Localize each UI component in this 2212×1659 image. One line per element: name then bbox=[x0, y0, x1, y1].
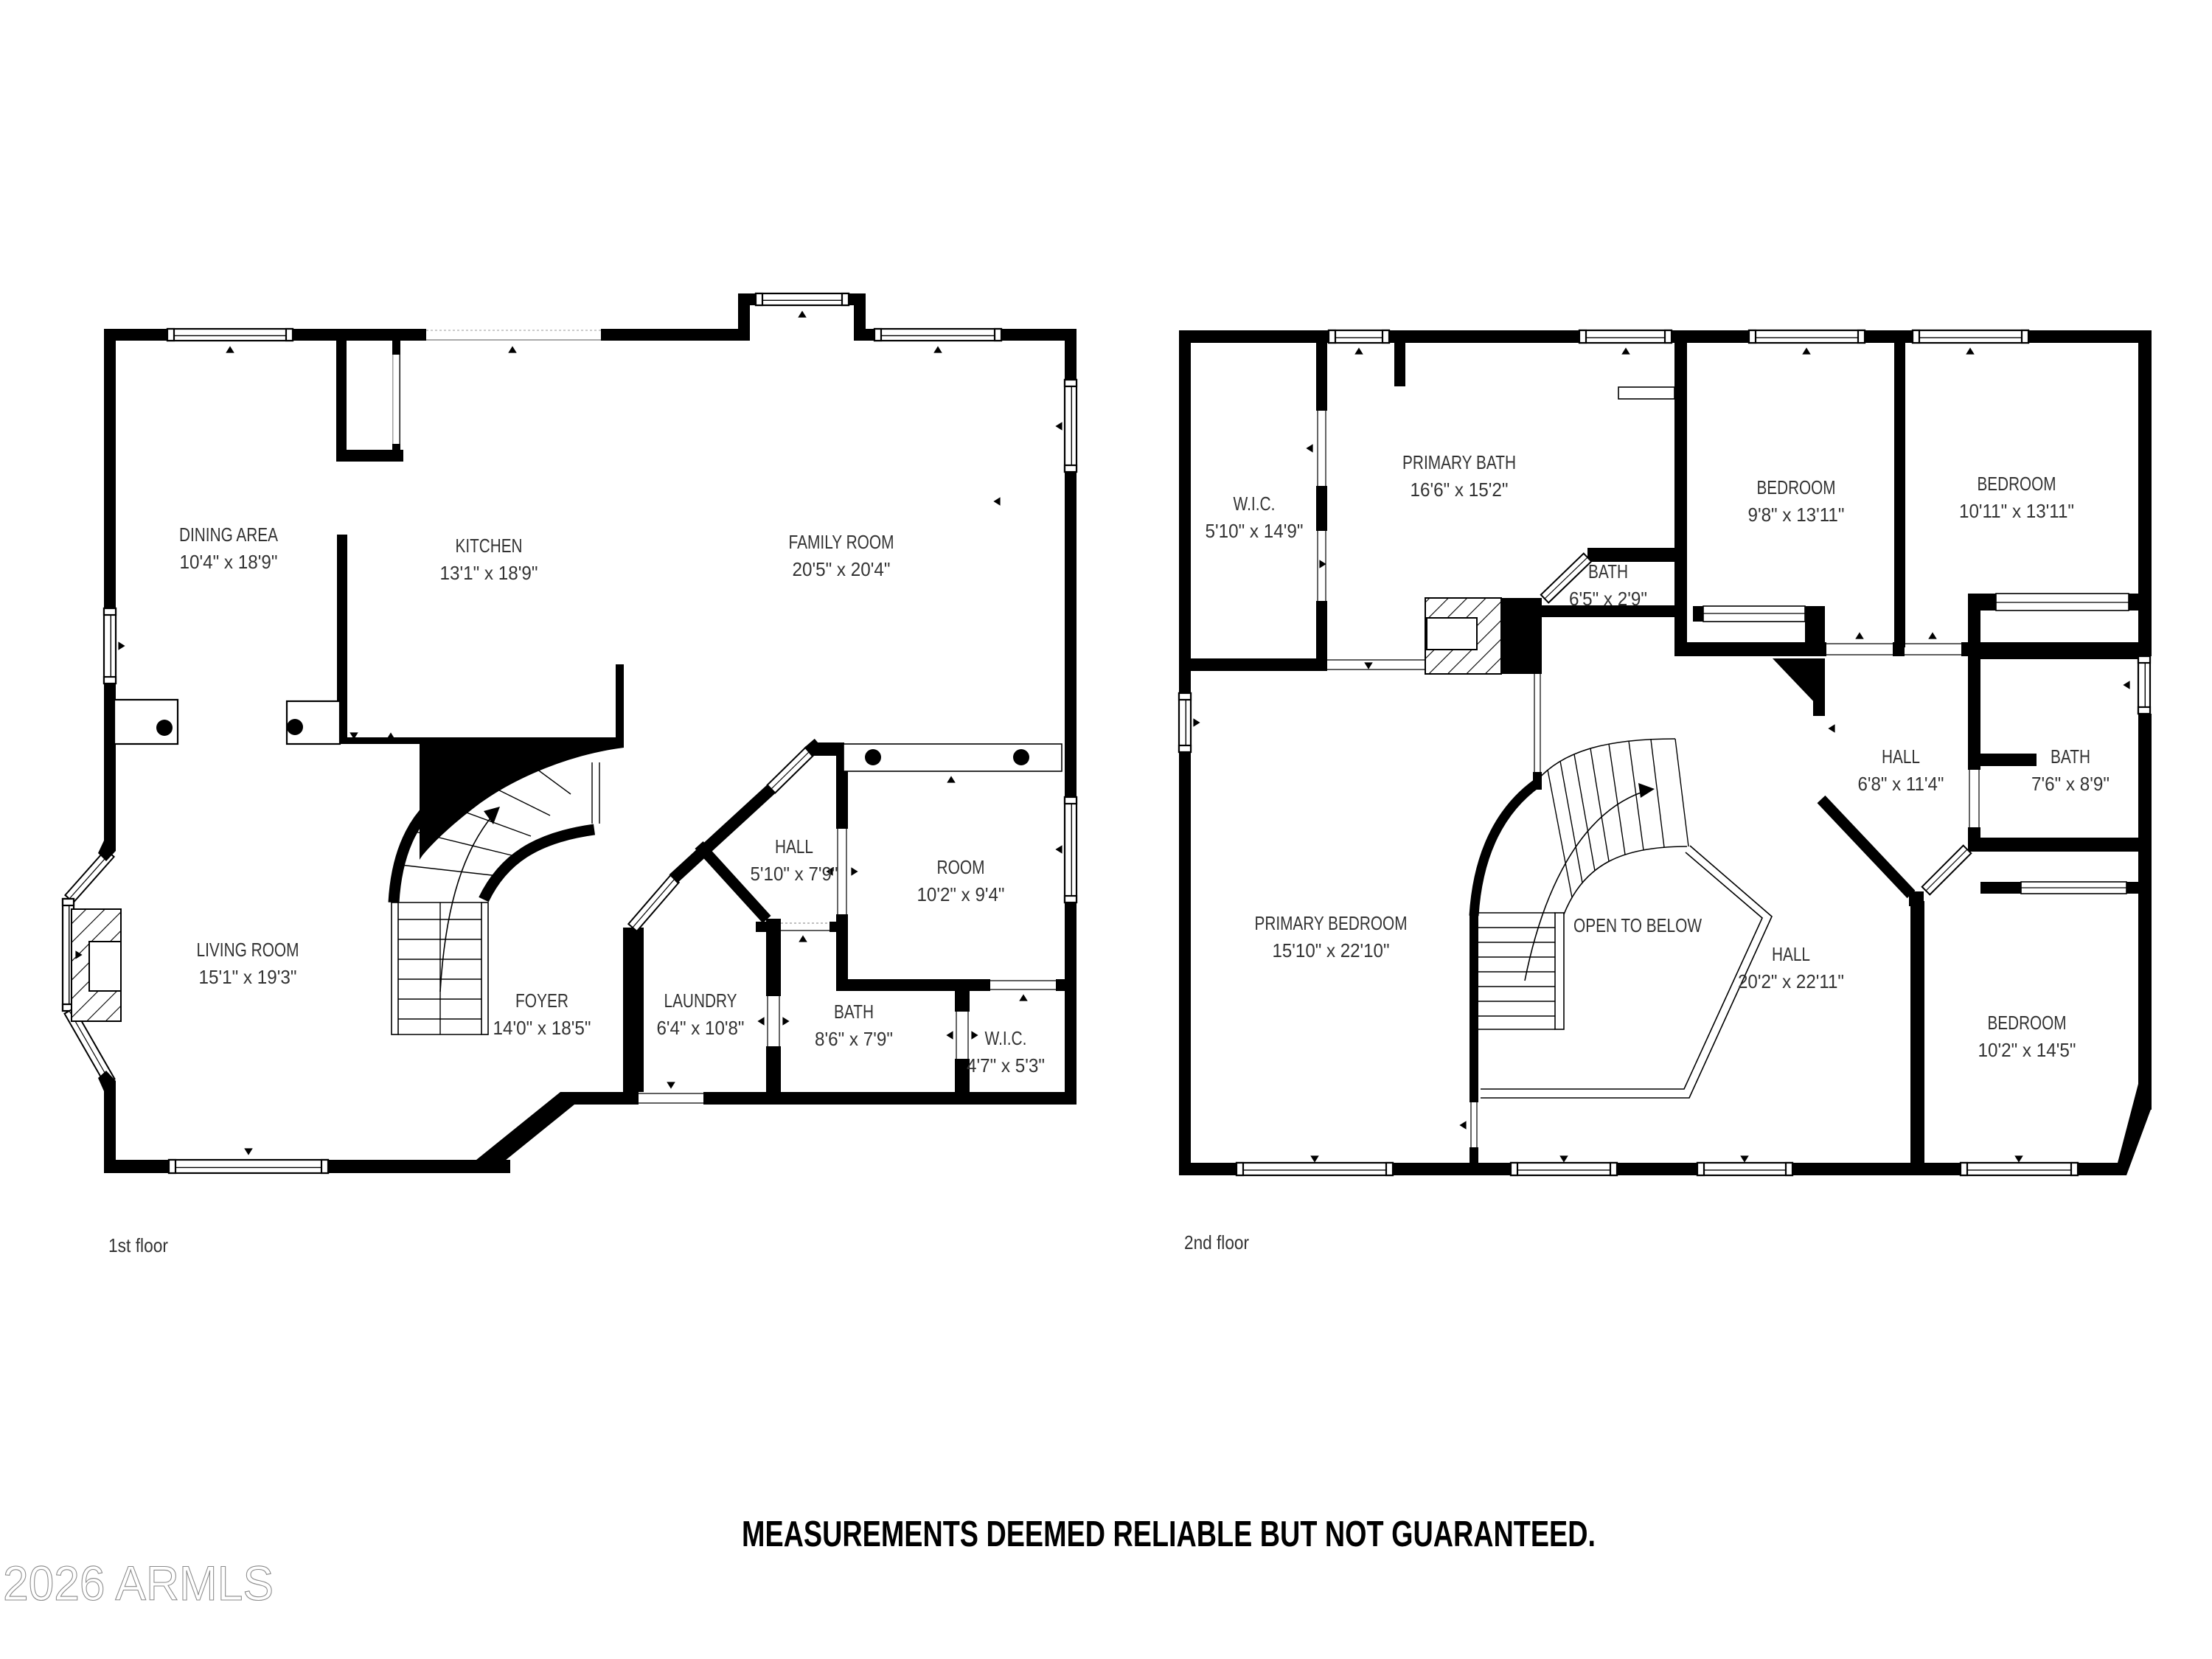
svg-text:FAMILY ROOM: FAMILY ROOM bbox=[789, 531, 894, 553]
svg-text:4'7" x 5'3": 4'7" x 5'3" bbox=[967, 1054, 1045, 1077]
svg-text:BATH: BATH bbox=[834, 1001, 874, 1023]
svg-text:7'6" x 8'9": 7'6" x 8'9" bbox=[2031, 773, 2110, 795]
svg-text:1st floor: 1st floor bbox=[108, 1234, 168, 1256]
svg-text:ROOM: ROOM bbox=[937, 856, 985, 878]
svg-text:5'10" x 7'9": 5'10" x 7'9" bbox=[751, 863, 838, 885]
svg-text:10'4" x 18'9": 10'4" x 18'9" bbox=[180, 551, 278, 573]
svg-text:W.I.C.: W.I.C. bbox=[985, 1027, 1027, 1049]
svg-text:MEASUREMENTS DEEMED RELIABLE B: MEASUREMENTS DEEMED RELIABLE BUT NOT GUA… bbox=[742, 1514, 1596, 1554]
svg-text:HALL: HALL bbox=[1882, 745, 1920, 768]
svg-text:LAUNDRY: LAUNDRY bbox=[664, 990, 737, 1012]
svg-text:DINING AREA: DINING AREA bbox=[179, 524, 279, 546]
svg-text:KITCHEN: KITCHEN bbox=[456, 535, 523, 557]
svg-text:15'1" x 19'3": 15'1" x 19'3" bbox=[199, 966, 297, 988]
svg-text:10'11" x 13'11": 10'11" x 13'11" bbox=[1959, 500, 2074, 522]
svg-text:BEDROOM: BEDROOM bbox=[1988, 1012, 2067, 1034]
svg-text:BATH: BATH bbox=[2051, 745, 2090, 768]
svg-text:6'8" x 11'4": 6'8" x 11'4" bbox=[1858, 773, 1944, 795]
svg-text:OPEN TO BELOW: OPEN TO BELOW bbox=[1573, 914, 1702, 936]
svg-text:LIVING ROOM: LIVING ROOM bbox=[197, 939, 299, 961]
svg-text:5'10" x 14'9": 5'10" x 14'9" bbox=[1206, 520, 1304, 542]
svg-text:6'4" x 10'8": 6'4" x 10'8" bbox=[657, 1017, 745, 1039]
svg-text:BATH: BATH bbox=[1588, 560, 1628, 582]
svg-text:FOYER: FOYER bbox=[515, 990, 568, 1012]
svg-text:HALL: HALL bbox=[775, 835, 813, 858]
svg-text:15'10" x 22'10": 15'10" x 22'10" bbox=[1273, 939, 1390, 961]
svg-text:8'6" x 7'9": 8'6" x 7'9" bbox=[815, 1028, 893, 1050]
svg-text:W.I.C.: W.I.C. bbox=[1234, 493, 1276, 515]
svg-text:6'5" x 2'9": 6'5" x 2'9" bbox=[1569, 588, 1647, 610]
svg-text:BEDROOM: BEDROOM bbox=[1757, 476, 1836, 498]
svg-text:2nd floor: 2nd floor bbox=[1184, 1231, 1249, 1253]
svg-text:16'6" x 15'2": 16'6" x 15'2" bbox=[1411, 479, 1509, 501]
svg-text:20'2" x 22'11": 20'2" x 22'11" bbox=[1738, 970, 1844, 992]
svg-text:BEDROOM: BEDROOM bbox=[1978, 473, 2056, 495]
svg-text:HALL: HALL bbox=[1772, 943, 1810, 965]
svg-text:14'0" x 18'5": 14'0" x 18'5" bbox=[493, 1017, 591, 1039]
svg-text:PRIMARY BEDROOM: PRIMARY BEDROOM bbox=[1255, 912, 1408, 934]
svg-text:10'2" x 14'5": 10'2" x 14'5" bbox=[1978, 1039, 2076, 1061]
svg-text:13'1" x 18'9": 13'1" x 18'9" bbox=[440, 562, 538, 584]
svg-text:20'5" x 20'4": 20'5" x 20'4" bbox=[793, 558, 891, 580]
svg-text:PRIMARY BATH: PRIMARY BATH bbox=[1402, 451, 1516, 473]
svg-text:2026 ARMLS: 2026 ARMLS bbox=[3, 1556, 274, 1610]
svg-text:9'8" x 13'11": 9'8" x 13'11" bbox=[1748, 504, 1845, 526]
svg-text:10'2" x 9'4": 10'2" x 9'4" bbox=[917, 883, 1005, 905]
